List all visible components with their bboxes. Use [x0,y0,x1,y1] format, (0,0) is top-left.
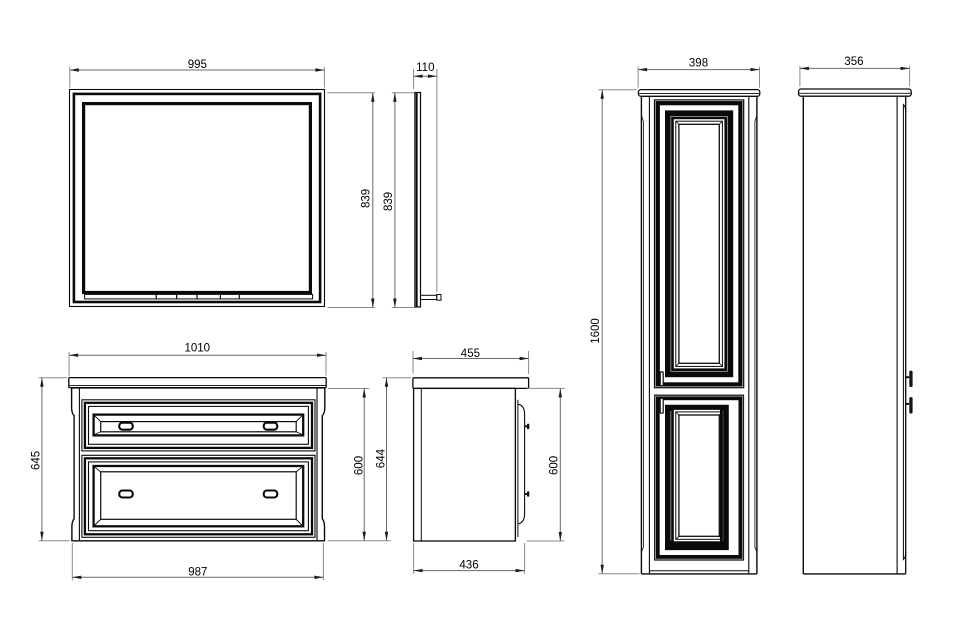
svg-text:839: 839 [361,189,373,208]
svg-text:839: 839 [383,192,395,211]
svg-text:398: 398 [689,57,708,69]
svg-text:600: 600 [354,456,366,475]
svg-text:455: 455 [461,348,480,360]
svg-text:644: 644 [375,448,387,468]
svg-text:645: 645 [30,451,42,470]
svg-text:356: 356 [844,56,863,68]
svg-text:1010: 1010 [185,342,211,354]
svg-text:995: 995 [188,59,207,71]
svg-text:987: 987 [188,566,207,578]
svg-text:600: 600 [548,456,560,475]
svg-text:1600: 1600 [590,318,602,344]
svg-text:110: 110 [416,62,434,74]
svg-text:436: 436 [459,559,478,571]
